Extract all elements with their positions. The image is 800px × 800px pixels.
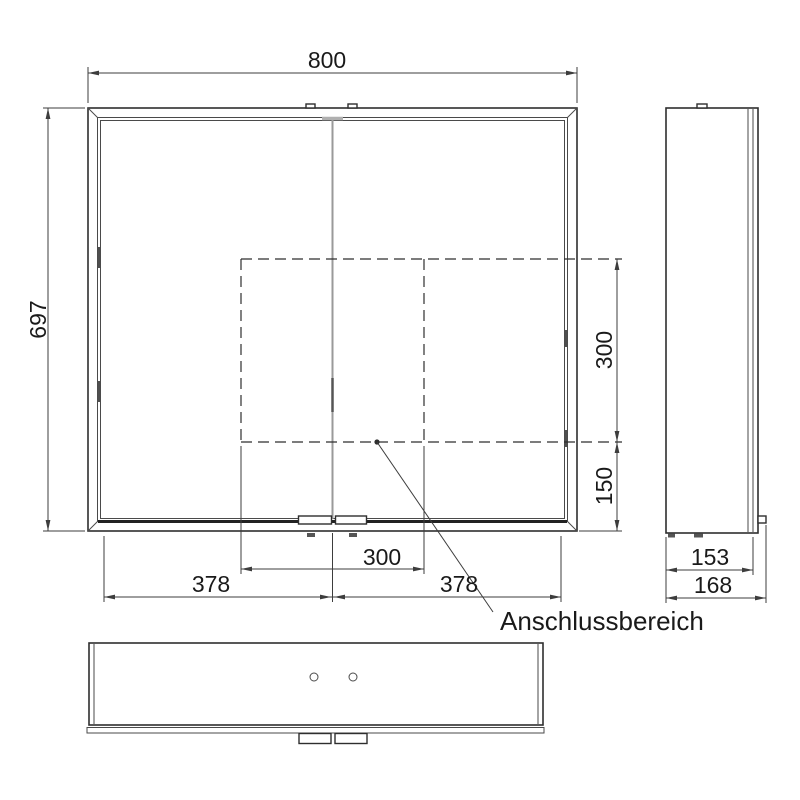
bottom-body	[89, 643, 543, 725]
arrow-center-left	[320, 595, 331, 600]
arrow-right	[566, 71, 577, 76]
mirror-cabinet-drawing: Anschlussbereich 800 697 300 150	[0, 0, 800, 800]
dimension-front-height: 697	[25, 108, 85, 531]
arrow-left	[88, 71, 99, 76]
connection-area-label: Anschlussbereich	[500, 606, 704, 636]
bottom-handle-left	[299, 734, 331, 744]
side-bottom-clips	[668, 534, 703, 538]
arrow-down	[615, 520, 620, 531]
side-view	[666, 104, 766, 538]
technical-drawing-page: Anschlussbereich 800 697 300 150	[0, 0, 800, 800]
arrow-down	[46, 520, 51, 531]
dim-300-bottom-text: 300	[363, 544, 401, 570]
bottom-front-strip	[87, 728, 544, 734]
bottom-mount-hole-right	[349, 673, 357, 681]
arrow-up	[615, 442, 620, 453]
dimension-front-width: 800	[88, 47, 577, 103]
dimension-connection-bottom-offset: 150	[579, 442, 622, 531]
arrow-right	[742, 568, 753, 573]
dim-168-text: 168	[694, 572, 732, 598]
arrow-right	[755, 596, 766, 601]
dim-697-text: 697	[25, 300, 51, 338]
side-bottom-handle-nub	[758, 516, 766, 523]
front-view	[88, 104, 577, 537]
dim-800-text: 800	[308, 47, 346, 73]
front-handle-left	[299, 516, 332, 524]
dimension-door-widths: 378 378	[104, 533, 561, 602]
arrow-left	[241, 567, 252, 572]
bottom-mount-hole-left	[310, 673, 318, 681]
front-top-tab-right	[348, 104, 357, 108]
dim-378-left-text: 378	[192, 571, 230, 597]
bottom-door-handles	[299, 734, 367, 744]
arrow-left	[666, 568, 677, 573]
bottom-view	[87, 643, 544, 744]
arrow-center-right	[334, 595, 345, 600]
front-handle-right	[336, 516, 367, 524]
arrow-up	[615, 259, 620, 270]
bottom-handle-right	[335, 734, 367, 744]
side-body	[666, 108, 758, 533]
dim-153-text: 153	[691, 544, 729, 570]
arrow-down	[615, 431, 620, 442]
arrow-left	[666, 596, 677, 601]
dimension-connection-height: 300	[591, 259, 619, 442]
arrow-right	[413, 567, 424, 572]
dim-150-text: 150	[591, 467, 617, 505]
arrow-left	[104, 595, 115, 600]
arrow-up	[46, 108, 51, 119]
dim-300-vertical-text: 300	[591, 331, 617, 369]
arrow-right	[550, 595, 561, 600]
dim-378-right-text: 378	[440, 571, 478, 597]
front-top-tab-left	[306, 104, 315, 108]
side-top-mount-tab	[697, 104, 707, 108]
